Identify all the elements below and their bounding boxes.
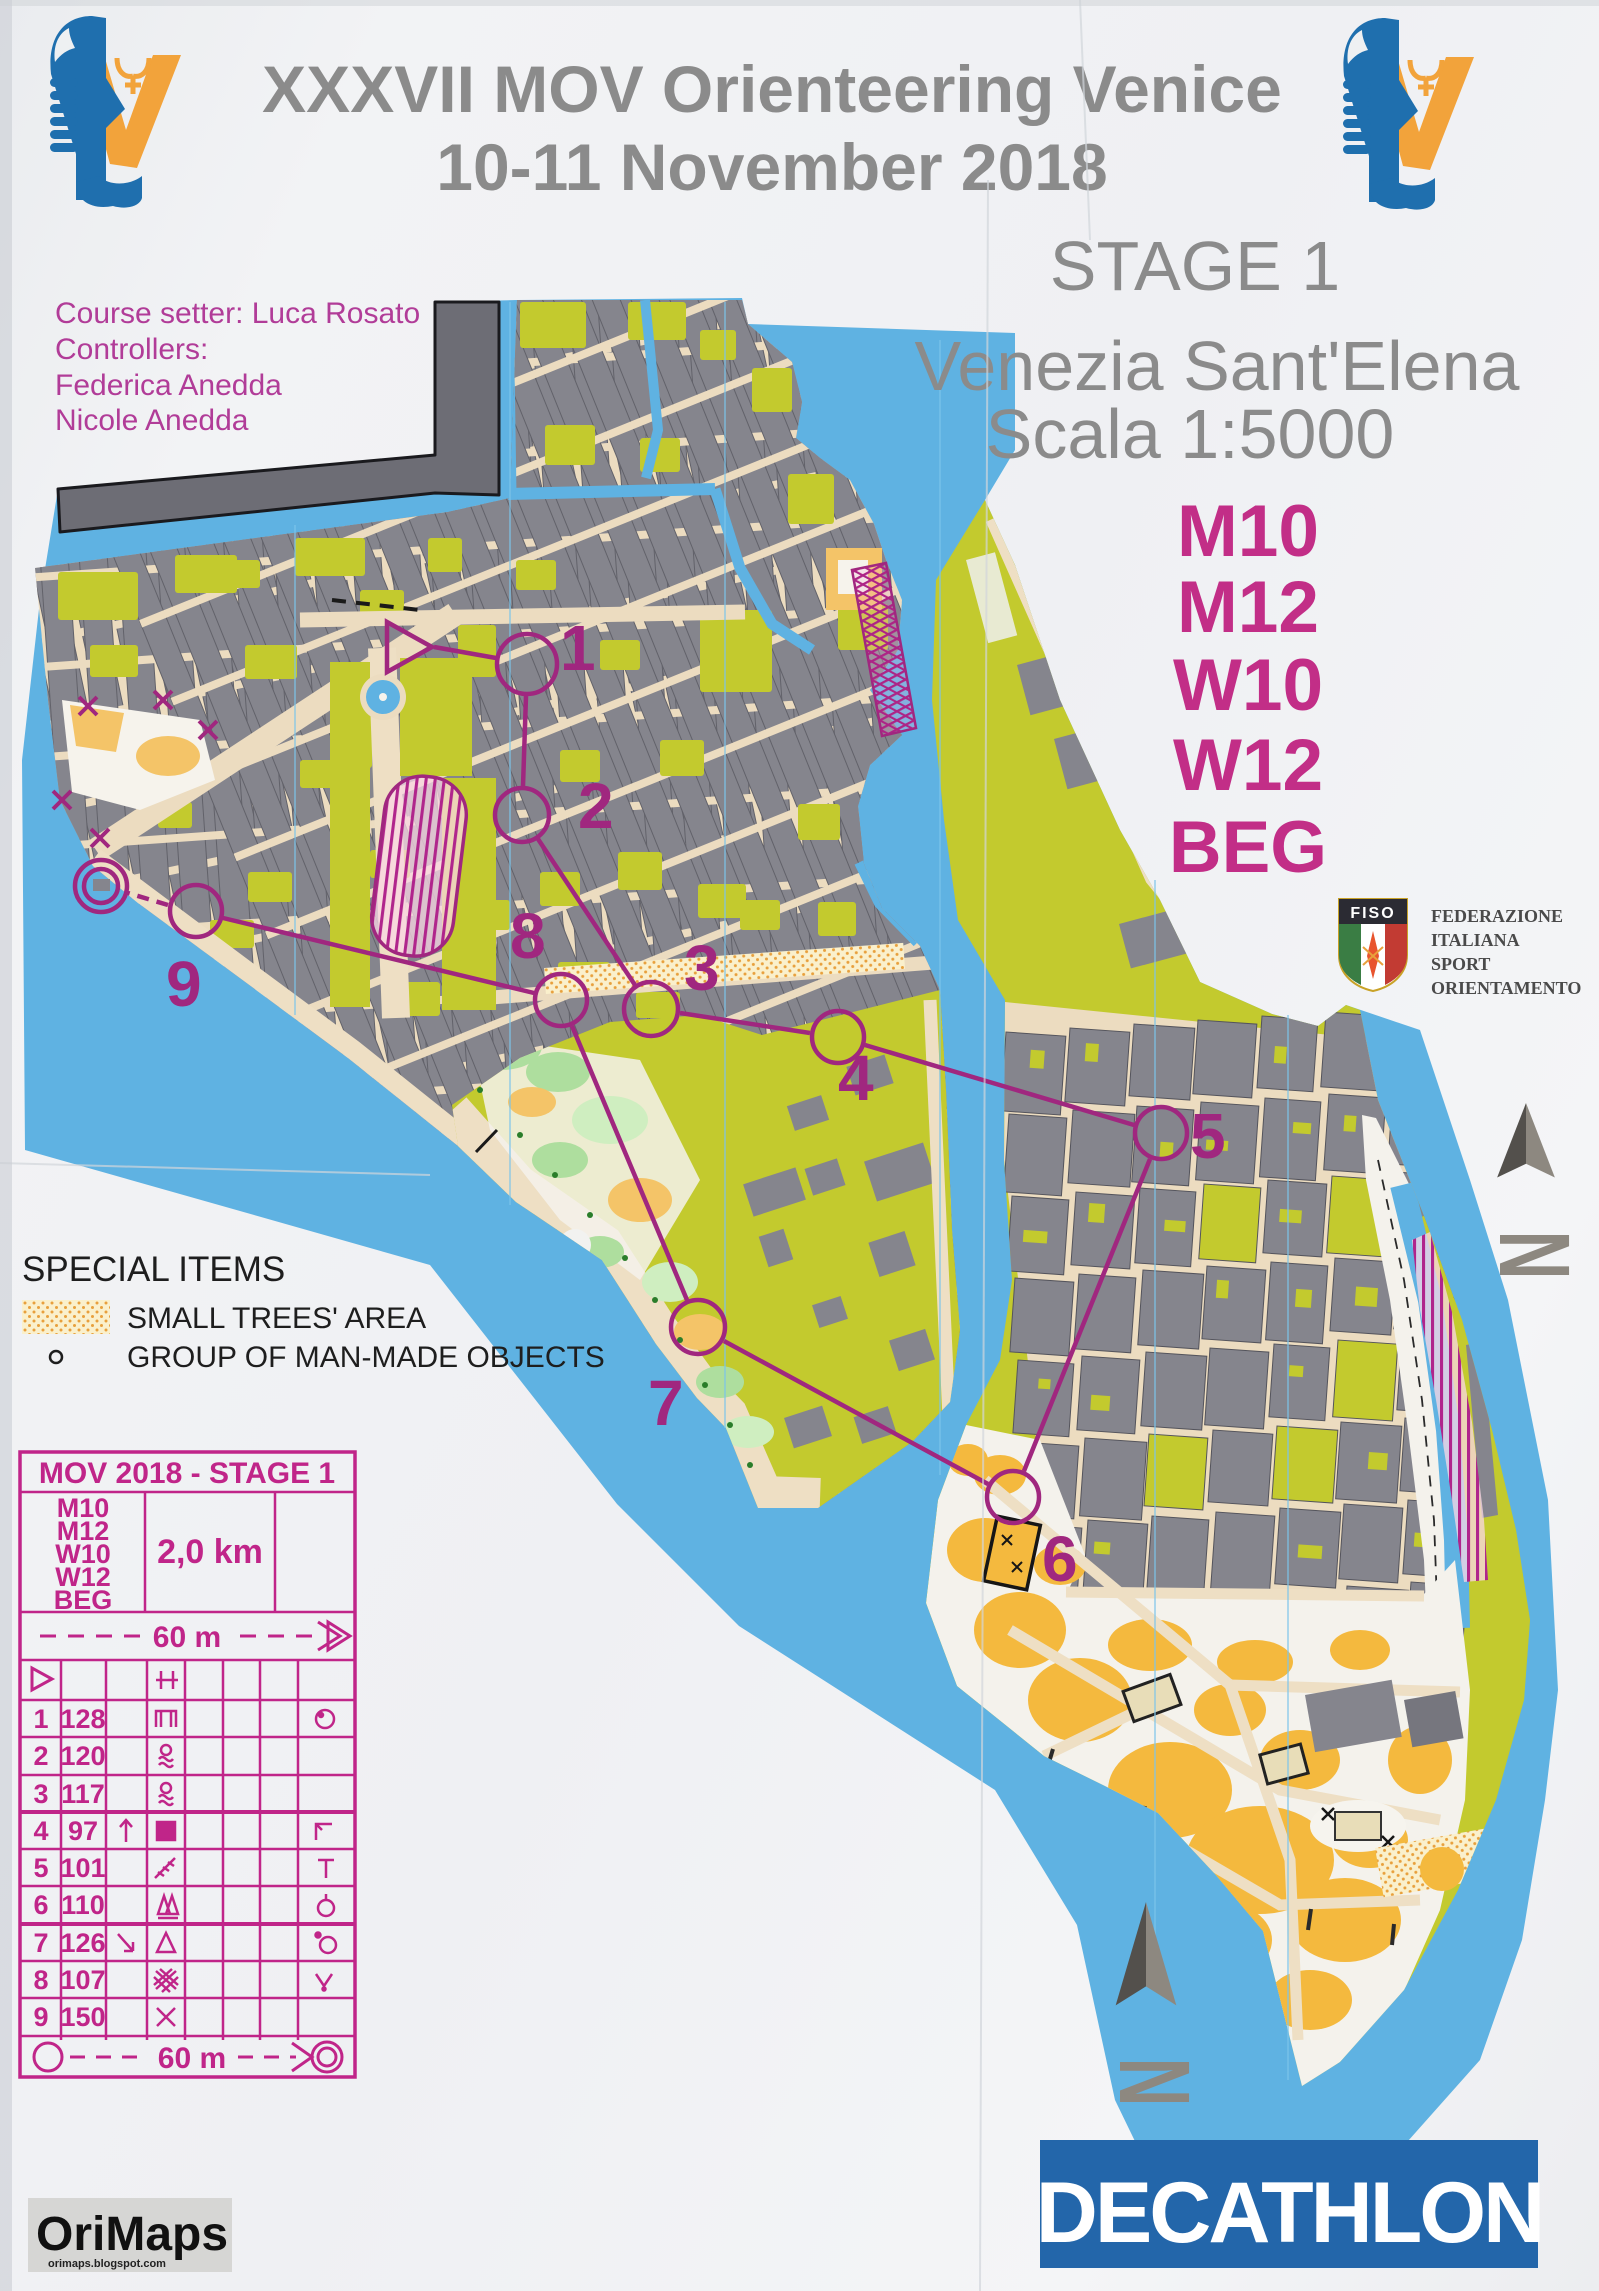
svg-text:120: 120: [60, 1741, 105, 1771]
svg-text:Course setter: Luca Rosato: Course setter: Luca Rosato: [55, 297, 420, 330]
svg-text:110: 110: [61, 1890, 105, 1920]
svg-text:ITALIANA: ITALIANA: [1431, 930, 1520, 950]
svg-text:BEG: BEG: [54, 1585, 113, 1615]
svg-text:SPECIAL ITEMS: SPECIAL ITEMS: [22, 1250, 285, 1289]
svg-text:2: 2: [578, 770, 614, 842]
svg-text:8: 8: [510, 900, 546, 972]
svg-text:Nicole Anedda: Nicole Anedda: [55, 404, 249, 437]
svg-text:128: 128: [60, 1704, 105, 1734]
svg-text:DECATHLON: DECATHLON: [1036, 2165, 1542, 2261]
svg-text:3: 3: [684, 932, 720, 1004]
svg-text:60 m: 60 m: [158, 2042, 226, 2075]
svg-text:1: 1: [560, 612, 596, 684]
svg-text:SPORT: SPORT: [1431, 954, 1490, 974]
svg-text:W12: W12: [1173, 725, 1323, 806]
svg-text:1: 1: [33, 1704, 48, 1734]
svg-text:126: 126: [60, 1928, 105, 1958]
svg-text:2: 2: [33, 1741, 48, 1771]
svg-text:SMALL TREES' AREA: SMALL TREES' AREA: [127, 1302, 426, 1335]
svg-text:2,0 km: 2,0 km: [157, 1533, 263, 1571]
svg-text:6: 6: [1042, 1523, 1078, 1595]
svg-text:6: 6: [33, 1890, 48, 1920]
svg-text:60 m: 60 m: [153, 1621, 221, 1654]
svg-text:Controllers:: Controllers:: [55, 333, 208, 366]
svg-text:107: 107: [60, 1965, 105, 1995]
svg-text:orimaps.blogspot.com: orimaps.blogspot.com: [48, 2258, 166, 2270]
svg-text:101: 101: [60, 1853, 105, 1883]
svg-text:7: 7: [33, 1928, 48, 1958]
svg-text:Federica Anedda: Federica Anedda: [55, 369, 282, 402]
svg-text:FEDERAZIONE: FEDERAZIONE: [1431, 906, 1563, 926]
svg-text:ORIENTAMENTO: ORIENTAMENTO: [1431, 978, 1581, 998]
svg-text:FISO: FISO: [1350, 905, 1395, 922]
svg-text:Venezia Sant'Elena: Venezia Sant'Elena: [915, 327, 1520, 405]
svg-text:M12: M12: [1177, 567, 1319, 648]
svg-text:4: 4: [838, 1042, 874, 1114]
svg-text:9: 9: [166, 948, 202, 1020]
svg-text:3: 3: [33, 1779, 48, 1809]
svg-text:4: 4: [33, 1816, 48, 1846]
svg-text:9: 9: [33, 2002, 48, 2032]
svg-text:XXXVII MOV Orienteering Venice: XXXVII MOV Orienteering Venice: [262, 52, 1282, 126]
svg-text:OriMaps: OriMaps: [36, 2208, 228, 2261]
svg-text:STAGE 1: STAGE 1: [1050, 227, 1340, 305]
svg-text:BEG: BEG: [1169, 807, 1327, 888]
svg-text:117: 117: [61, 1779, 105, 1809]
svg-text:5: 5: [1190, 1100, 1226, 1172]
svg-text:7: 7: [648, 1367, 684, 1439]
svg-text:10-11 November 2018: 10-11 November 2018: [436, 130, 1107, 204]
svg-text:150: 150: [60, 2002, 105, 2032]
svg-text:97: 97: [68, 1816, 98, 1846]
svg-text:MOV 2018 - STAGE 1: MOV 2018 - STAGE 1: [39, 1457, 335, 1490]
svg-text:8: 8: [33, 1965, 48, 1995]
svg-text:M10: M10: [1177, 491, 1319, 572]
svg-text:Scala 1:5000: Scala 1:5000: [986, 395, 1395, 473]
svg-text:N: N: [1478, 1230, 1589, 1279]
svg-text:GROUP OF MAN-MADE OBJECTS: GROUP OF MAN-MADE OBJECTS: [127, 1341, 605, 1374]
svg-text:5: 5: [33, 1853, 48, 1883]
svg-text:W10: W10: [1173, 645, 1323, 726]
svg-text:N: N: [1098, 2057, 1209, 2106]
